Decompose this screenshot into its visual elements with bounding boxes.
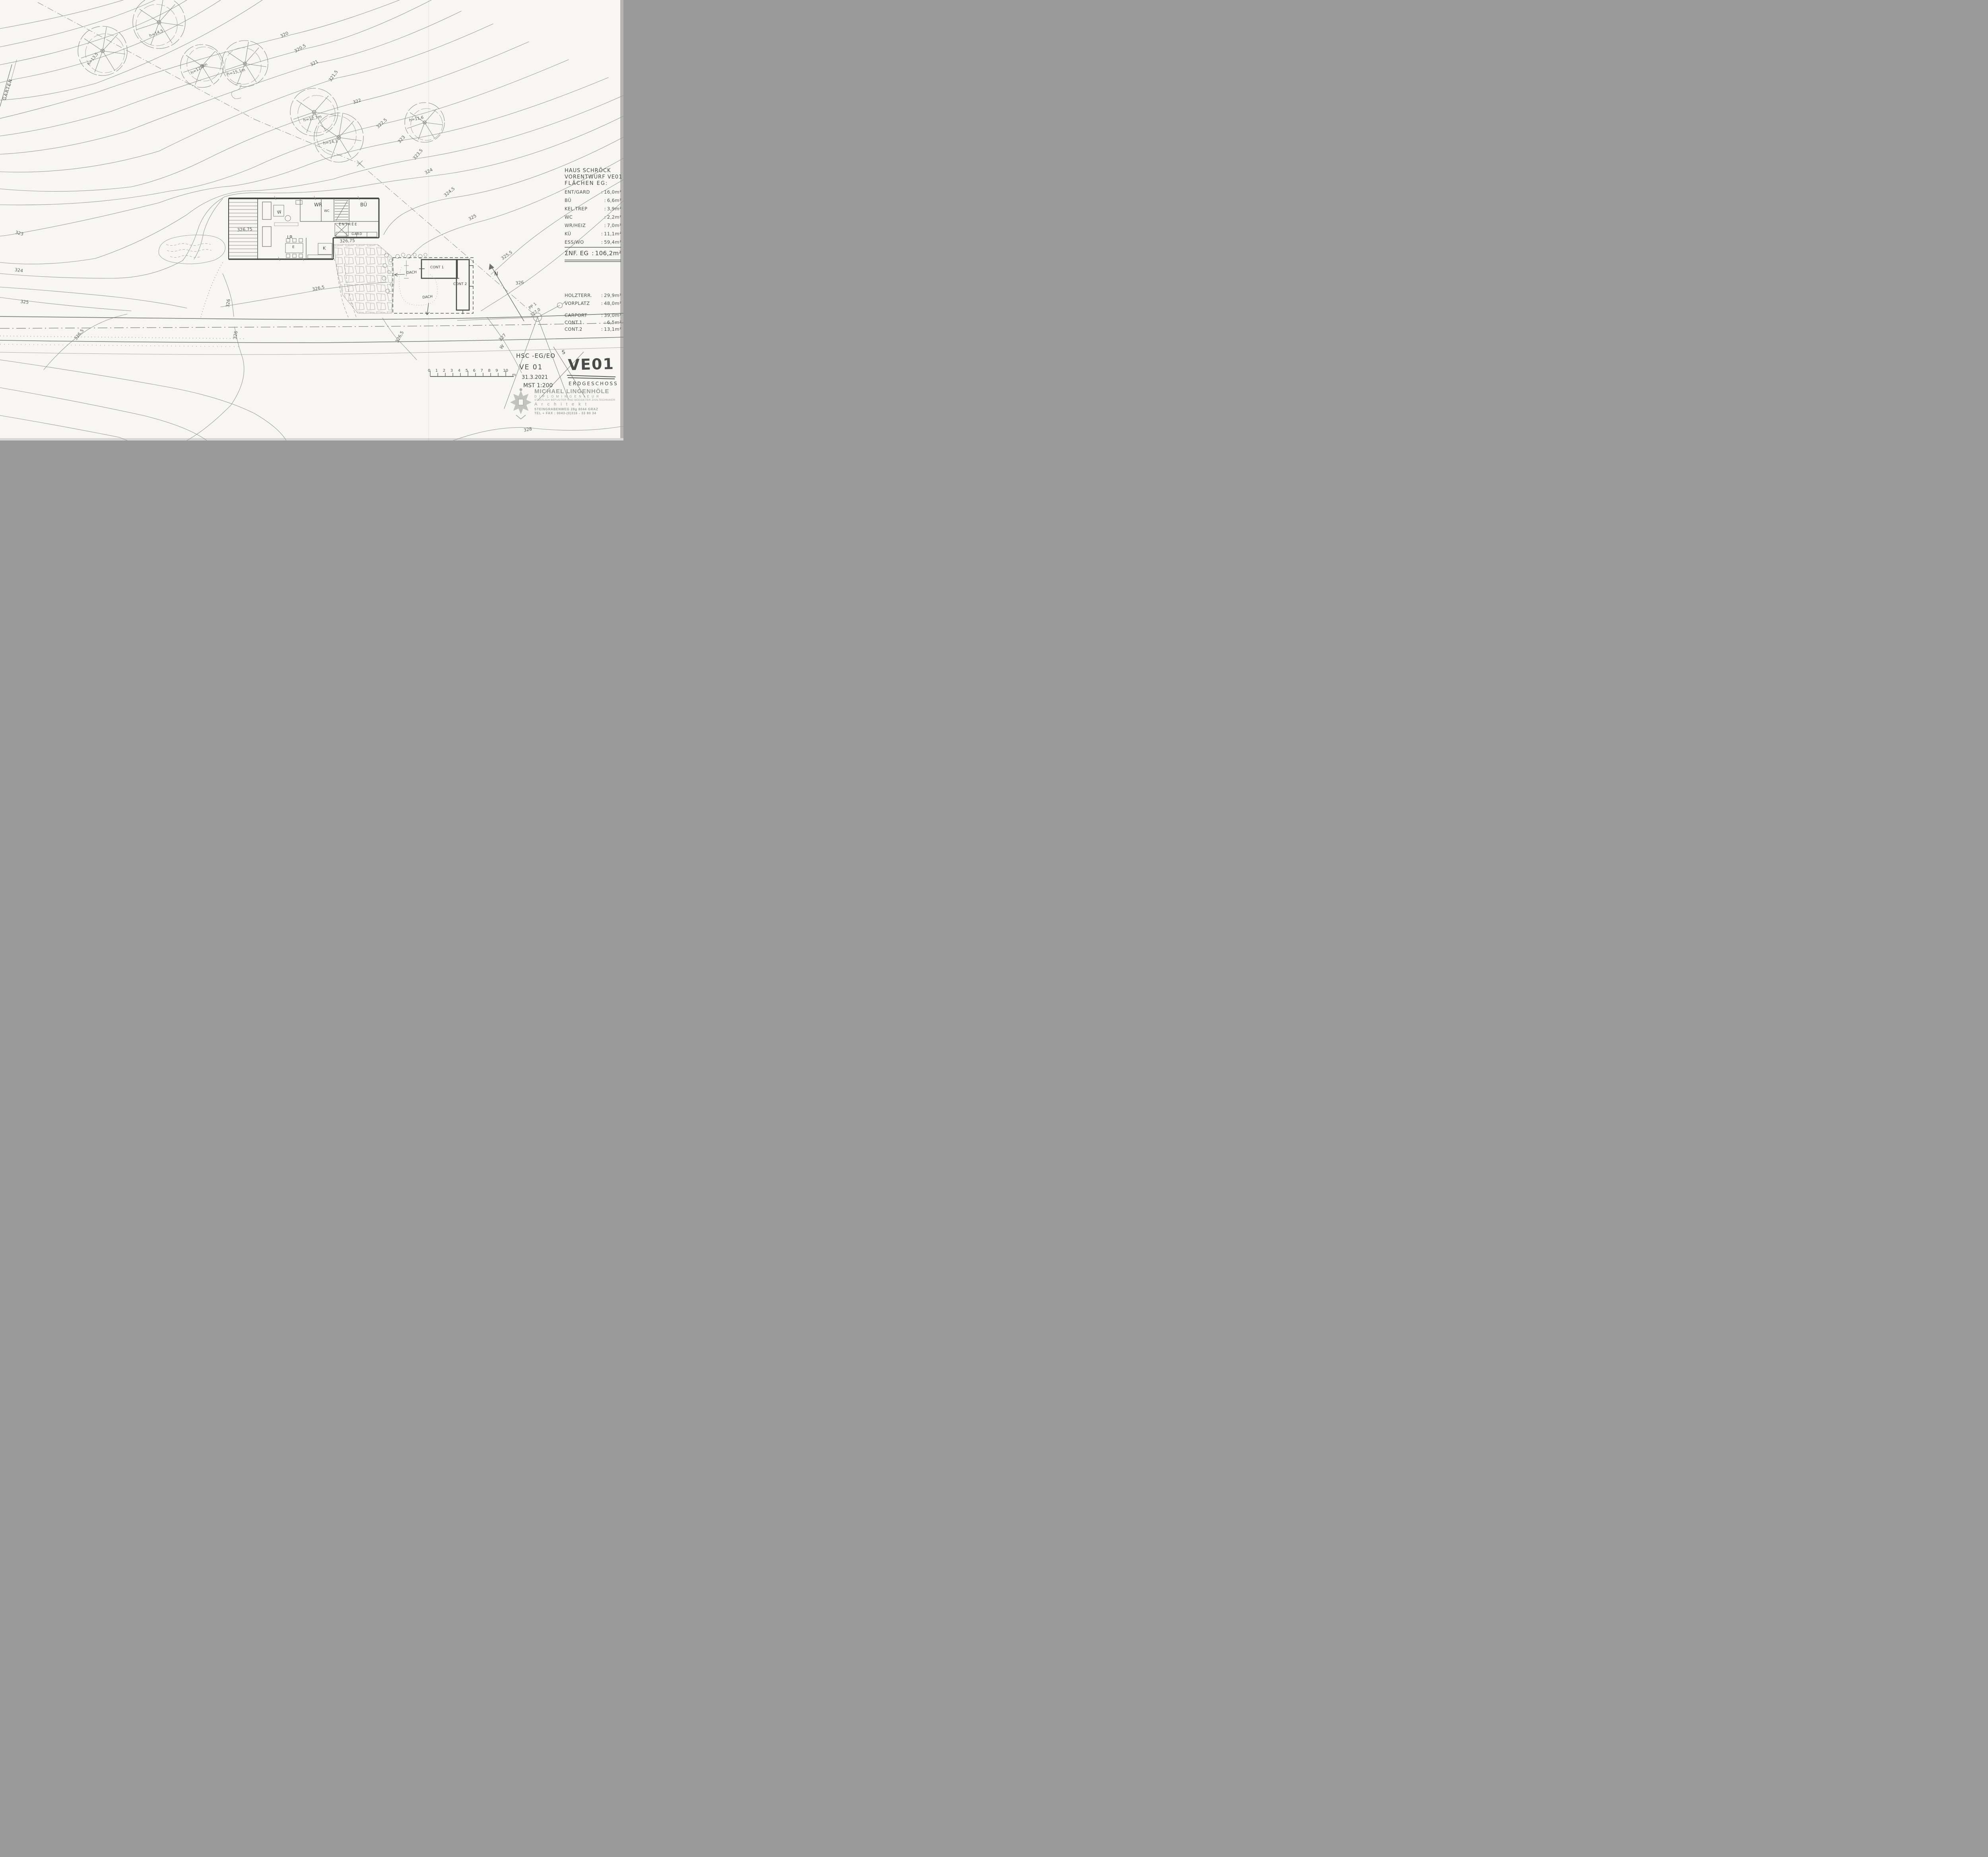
cont2-label: CONT 2 [453, 282, 467, 286]
room-label-bu: BÜ [360, 202, 367, 208]
drawing-date: 31.3.2021 [522, 375, 548, 380]
footpaths [201, 262, 356, 317]
sheet-name: ERDGESCHOSS [569, 381, 618, 386]
dach-label-1: DACH [406, 270, 417, 275]
stamp-address: STEINGRABENWEG 28g 8044 GRAZ [534, 407, 598, 411]
scale-bar-numbers: 012345678910 [428, 369, 508, 373]
room-label-entree: ENTRÉE [339, 223, 358, 227]
outdoor-row: CONT.1:6,5m² [565, 320, 621, 325]
outdoor-row: HOLZTERR.:29,9m² [565, 293, 621, 298]
table-title-phase: VORENTWURF VE01 [565, 174, 622, 180]
area-row: ENT/GARD:16,0m² [565, 189, 621, 195]
area-total-row: ΣNF. EG :106,2m² [565, 250, 621, 257]
outdoor-row: CARPORT:39,0m² [565, 312, 621, 318]
area-row: WR/HEIZ:7,0m² [565, 223, 621, 228]
deck-level-label: 326,75 [237, 227, 252, 233]
site-plan-sheet: GARTEN 320 320,5 321 321,5 322 322,5 323… [0, 0, 623, 440]
room-label-k: K [323, 246, 326, 251]
contour-label: 325 [20, 299, 29, 305]
room-label-e: E [292, 245, 295, 249]
area-row: KEL.TREP:3,9m² [565, 206, 621, 212]
north-label: N [494, 271, 498, 277]
road [0, 313, 623, 355]
sheet-code-large: VE01 [568, 355, 614, 374]
drawing-version: VE 01 [519, 363, 543, 371]
room-label-w: W [277, 209, 282, 215]
room-label-lr: LR [287, 235, 293, 240]
scale-bar-unit: m [512, 373, 516, 377]
table-title-areas: FLÄCHEN EG: [565, 180, 608, 186]
area-row: WC:2,2m² [565, 214, 621, 220]
table-title-project: HAUS SCHRÖCK [565, 168, 611, 174]
patio-level-label: 326,75 [340, 238, 355, 244]
drawing-code: HSC -EG/EO [516, 352, 555, 359]
room-label-wc: WC [324, 209, 330, 213]
area-row: KÜ:11,1m² [565, 231, 621, 237]
pond [159, 235, 225, 264]
room-label-gard: GARD [351, 232, 362, 236]
room-label-wr: WR [314, 202, 322, 208]
area-row: BÜ:6,6m² [565, 198, 621, 203]
stamp-phone: TEL + FAX : 0043-(0)316 - 33 80 34 [534, 411, 596, 415]
austrian-eagle-emblem [510, 388, 532, 419]
contour-label: 326 [515, 280, 524, 286]
outdoor-row: VORPLATZ:48,0m² [565, 301, 621, 306]
stamp-name: MICHAEL LINGENHÖLE [534, 388, 610, 395]
outdoor-row: CONT.2:13,1m² [565, 326, 621, 332]
stamp-subtitle: STAATLICH BEFUGTER UND BEEIDETER ZIVILTE… [534, 399, 615, 402]
area-row: ESS/WO:59,4m² [565, 239, 621, 245]
trees-group [78, 0, 445, 162]
stair [335, 200, 348, 221]
furniture [262, 200, 332, 258]
stamp-profession: A r c h i t e k t [534, 402, 588, 407]
cont1-label: CONT 1 [430, 266, 444, 270]
stamp-title: D I P L O M I N G E N I E U R [534, 395, 600, 398]
contour-label: 324 [14, 267, 23, 274]
